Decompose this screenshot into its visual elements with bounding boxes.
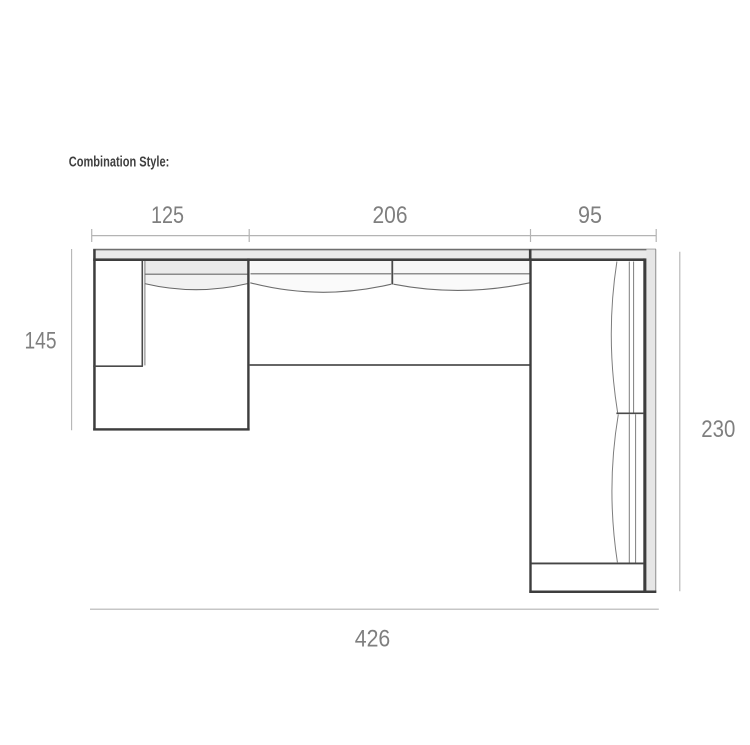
svg-text:230: 230 (701, 416, 735, 443)
svg-text:426: 426 (355, 625, 391, 652)
svg-text:145: 145 (25, 327, 57, 354)
svg-text:95: 95 (578, 202, 602, 229)
svg-text:125: 125 (151, 202, 184, 229)
svg-text:206: 206 (373, 202, 408, 229)
svg-text:Combination Style:: Combination Style: (69, 153, 170, 170)
